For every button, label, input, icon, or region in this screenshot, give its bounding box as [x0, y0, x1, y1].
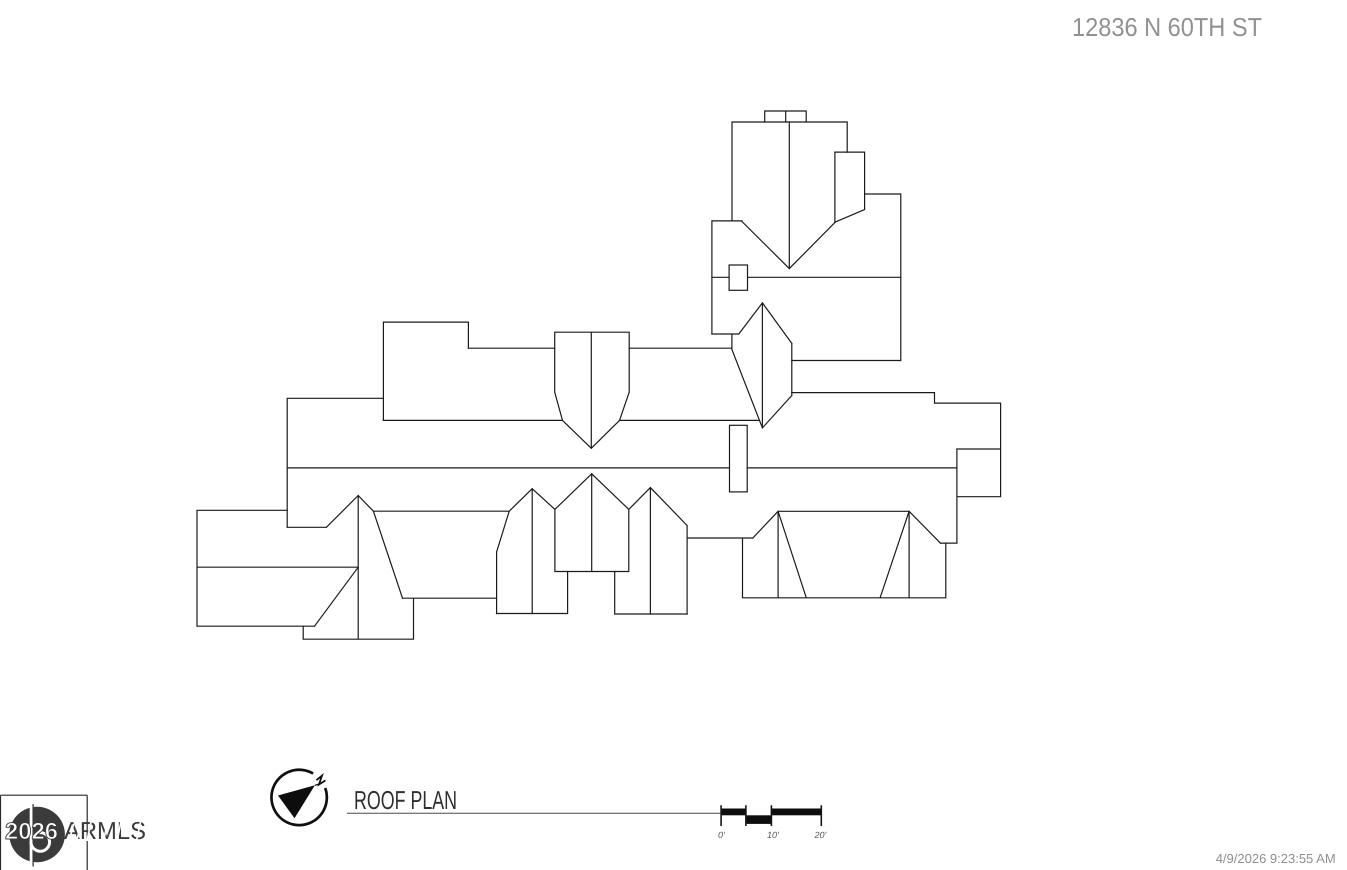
svg-text:ROOF PLAN: ROOF PLAN [354, 785, 457, 815]
svg-text:20': 20' [814, 830, 827, 840]
svg-text:0': 0' [718, 830, 725, 840]
svg-text:2026: 2026 [5, 818, 58, 844]
svg-text:10': 10' [767, 830, 779, 840]
svg-text:12836 N 60TH ST: 12836 N 60TH ST [1072, 12, 1262, 42]
svg-text:4/9/2026 9:23:55 AM: 4/9/2026 9:23:55 AM [1216, 851, 1336, 866]
